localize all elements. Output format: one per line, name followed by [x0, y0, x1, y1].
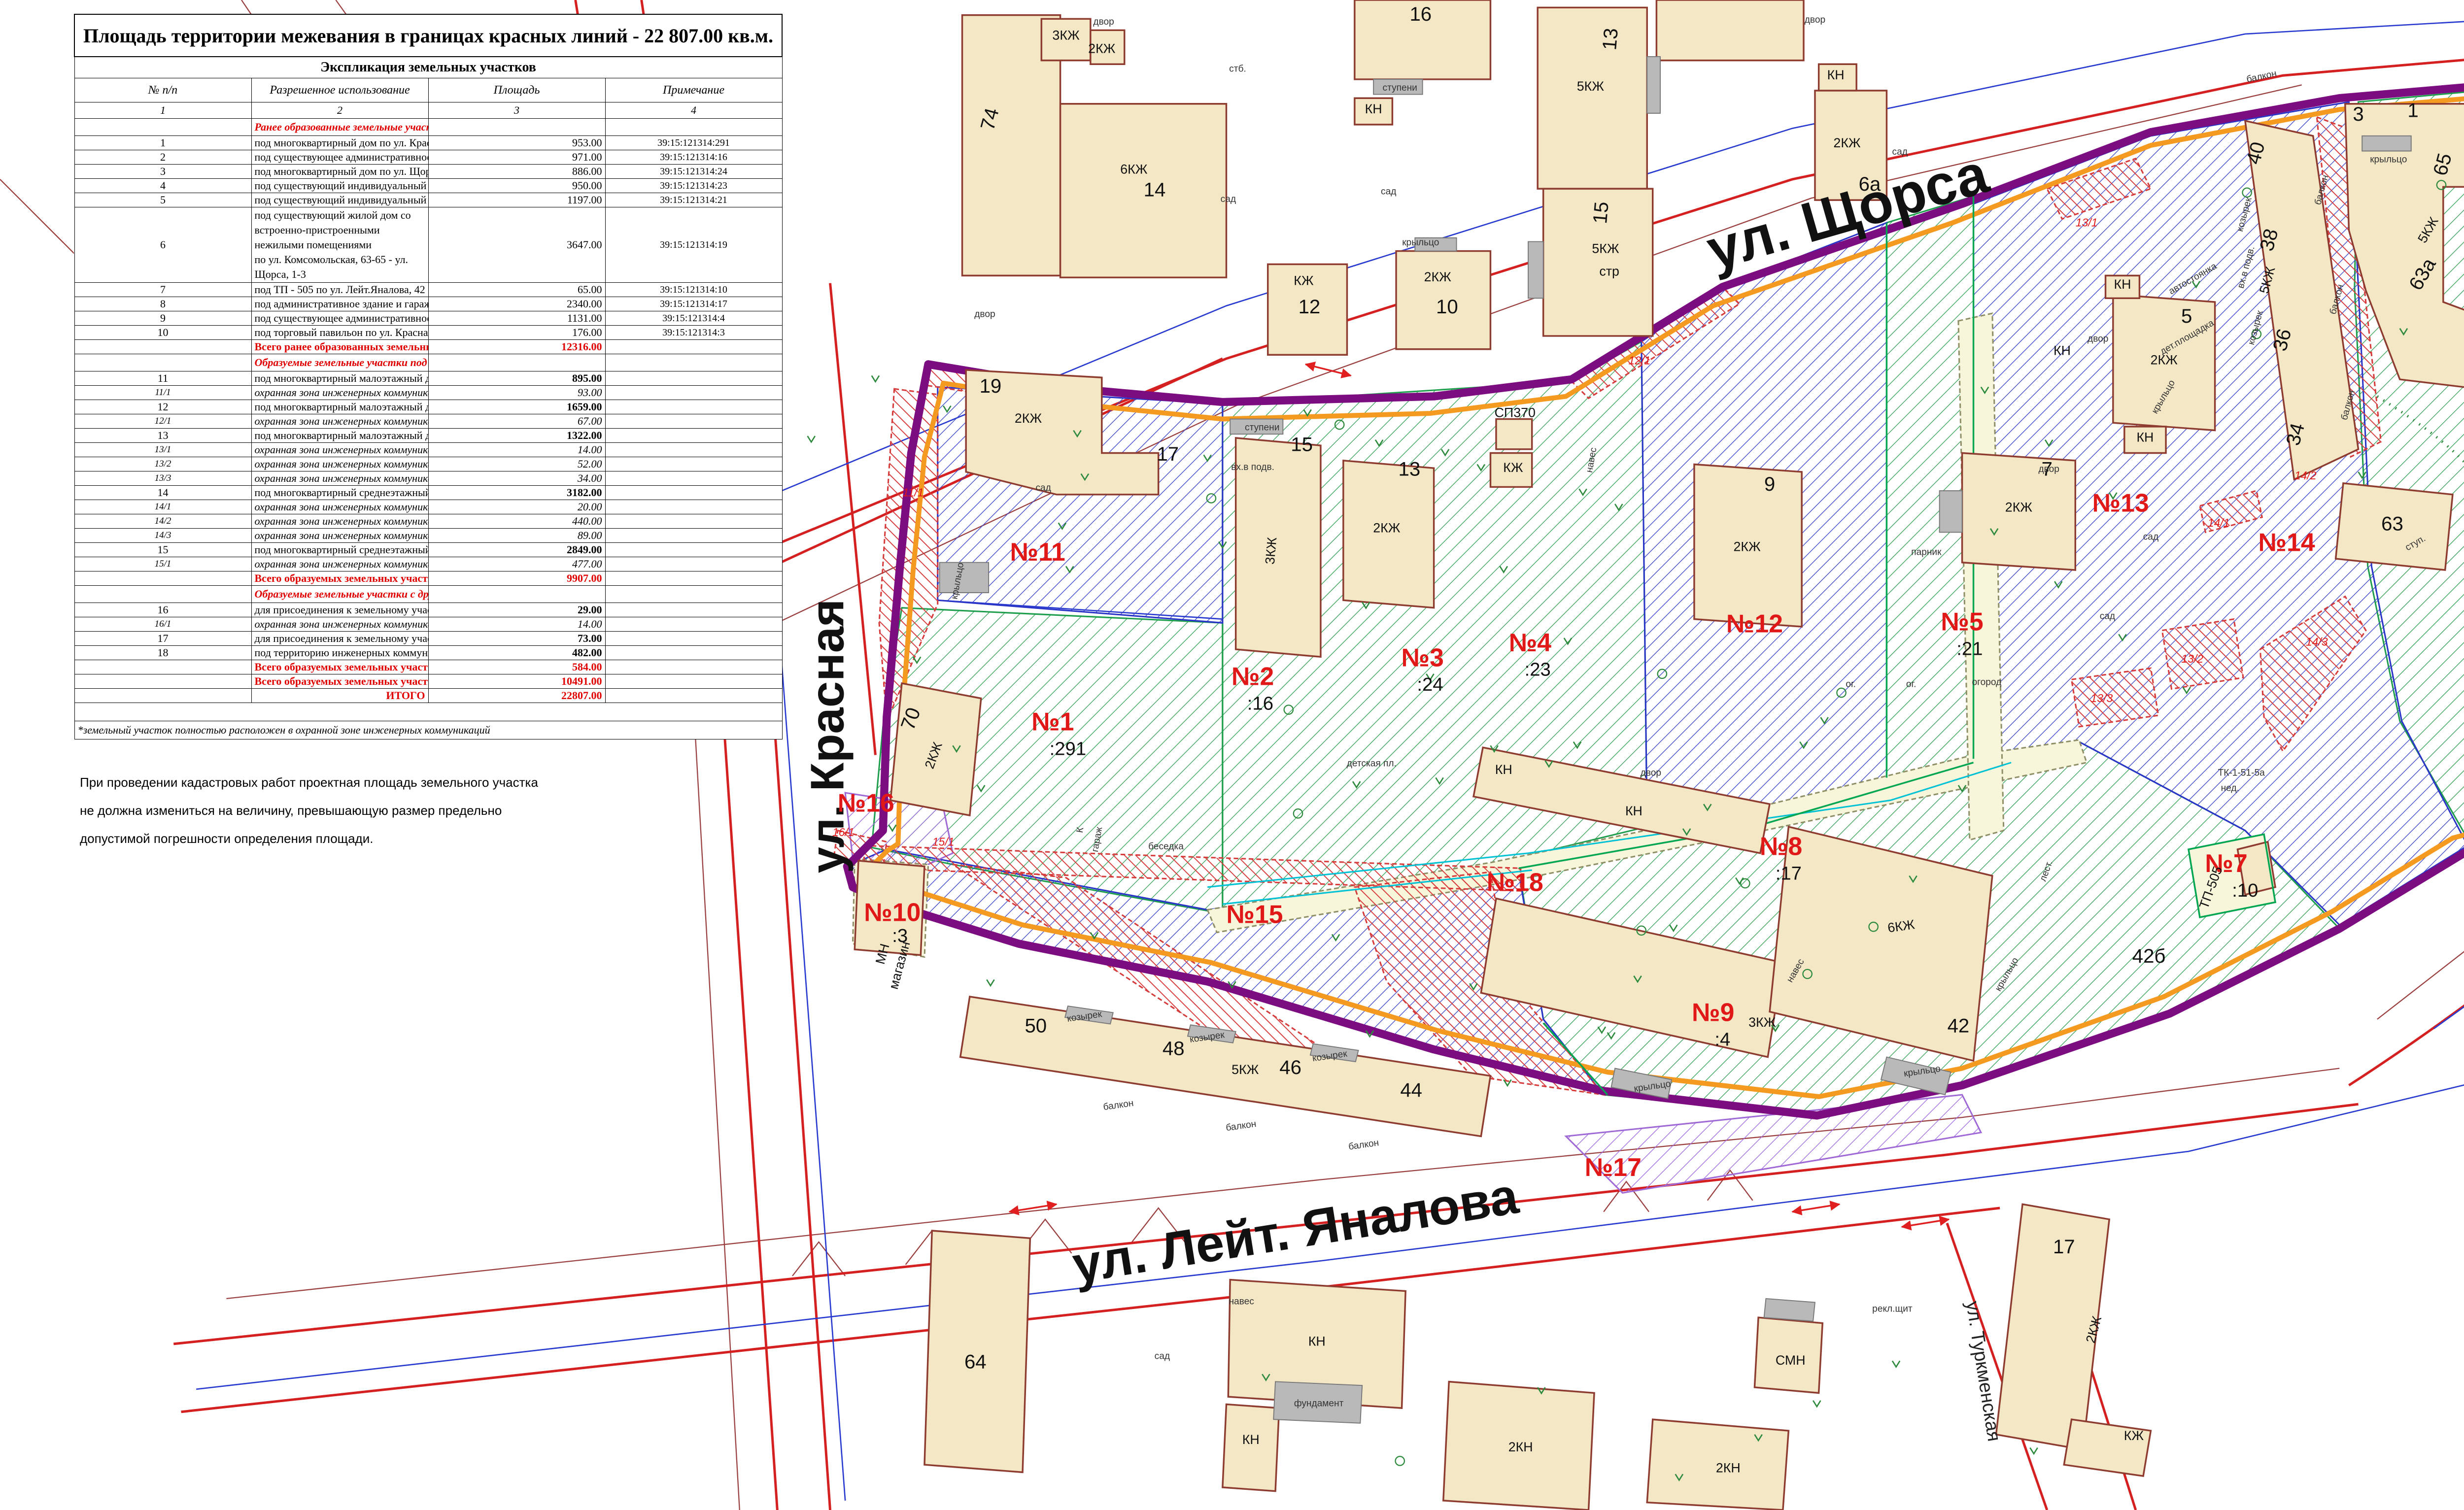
bn-label: 1: [2407, 100, 2418, 122]
ti-label: крыльцо: [1402, 237, 1439, 248]
table-row: 8под административное здание и гаражи дл…: [74, 297, 782, 311]
table-row: 13/3охранная зона инженерных коммуникаци…: [74, 471, 782, 486]
ti-label: нед.: [2221, 783, 2239, 793]
bn-label: 13: [1598, 27, 1622, 51]
bn-label: 42б: [2132, 945, 2166, 967]
sm-label: стр: [1599, 264, 1619, 278]
table-row: 14/2охранная зона инженерных коммуникаци…: [74, 514, 782, 529]
ti-label: двор: [1805, 15, 1825, 25]
cad-label: :21: [1956, 638, 1983, 659]
table-row: 16/1охранная зона инженерных коммуникаци…: [74, 617, 782, 632]
ti-label: сад: [2100, 611, 2115, 622]
table-row: 17для присоединения к земельному участку…: [74, 632, 782, 646]
explication-table: Площадь территории межевания в границах …: [74, 14, 783, 739]
sm-label: КН: [1308, 1334, 1326, 1349]
table-row: 7под ТП - 505 по ул. Лейт.Яналова, 4265.…: [74, 283, 782, 297]
page-title: Площадь территории межевания в границах …: [74, 14, 782, 57]
sm-label: КН: [2136, 430, 2154, 445]
table-subtitle: Экспликация земельных участков: [74, 57, 782, 78]
ti-label: сад: [2143, 532, 2158, 542]
ti-label: вх.в подв.: [1231, 462, 1274, 472]
pr-label: №8: [1760, 832, 1802, 861]
rs-label: 13/2: [2181, 652, 2203, 665]
table-row: *земельный участок полностью расположен …: [74, 721, 782, 739]
sm-label: КН: [1495, 762, 1512, 777]
bn-label: 63: [2381, 513, 2403, 535]
ti-label: парник: [1911, 547, 1942, 557]
ti-label: двор: [974, 309, 995, 320]
sm-label: 5КЖ: [1232, 1062, 1259, 1077]
grass-icon: [1892, 1361, 1900, 1367]
ti-label: рекл.щит: [1872, 1304, 1913, 1314]
rs-label: 11/1: [902, 486, 924, 499]
ti-label: навес: [1229, 1296, 1254, 1307]
ti-label: крыльцо: [2370, 154, 2407, 165]
cad-label: :291: [1050, 738, 1086, 759]
sm-label: 2КЖ: [1833, 135, 1860, 150]
bn-label: 17: [1157, 443, 1179, 465]
sm-label: СМН: [1776, 1353, 1806, 1368]
rs-label: 16/1: [832, 826, 855, 839]
bn-label: 17: [2053, 1236, 2075, 1258]
table-row: 12под многоквартирный малоэтажный дом по…: [74, 400, 782, 414]
ti-label: балкон: [1225, 1119, 1257, 1133]
pr-label: №18: [1487, 868, 1543, 896]
ti-label: сад: [1221, 194, 1236, 204]
grass-icon: [872, 375, 879, 381]
rs-label: 13/1: [2076, 216, 2098, 229]
col-header-note: Примечание: [605, 78, 782, 102]
ti-label: сад: [1155, 1351, 1170, 1361]
ti-label: огород: [1972, 677, 2001, 688]
table-subtitle-row: Экспликация земельных участков: [74, 57, 782, 78]
cadastral-plan-page: ул. Щорсаул. Комсомольскаяул. Краснаяул.…: [0, 0, 2464, 1510]
pr-label: №16: [838, 788, 894, 817]
sm-label: 6КЖ: [1120, 162, 1147, 176]
bn-label: 10: [1436, 296, 1458, 318]
bn-label: 9: [1764, 473, 1775, 495]
ti-label: двор: [1093, 17, 1114, 27]
sm-label: КН: [2053, 343, 2071, 358]
pr-label: №9: [1692, 998, 1734, 1027]
bn-label: 15: [1589, 201, 1613, 225]
sm-label: 2КЖ: [1373, 520, 1400, 535]
table-row: Всего образуемых земельных участков10491…: [74, 674, 782, 689]
note-below-table: При проведении кадастровых работ проектн…: [80, 769, 563, 853]
sm-label: 3КЖ: [1263, 537, 1280, 565]
table-row: 11под многоквартирный малоэтажный дом по…: [74, 371, 782, 386]
parcel-5: [1886, 196, 1973, 777]
sm-label: 2КЖ: [1424, 269, 1451, 284]
ti-label: ступени: [1245, 423, 1279, 433]
bn-label: 46: [1279, 1056, 1301, 1078]
table-row: 3под многоквартирный дом по ул. Щорса, 1…: [74, 165, 782, 179]
sm-label: КЖ: [1294, 273, 1314, 288]
sm-label: 3КЖ: [1748, 1015, 1776, 1030]
bn-label: 42: [1948, 1015, 1970, 1037]
sm-label: КЖ: [2124, 1428, 2144, 1443]
pr-label: №14: [2259, 528, 2315, 557]
cad-label: :4: [1714, 1029, 1730, 1050]
cad-label: :17: [1776, 863, 1802, 884]
sm-label: 2КЖ: [2005, 500, 2032, 514]
ti-label: сад: [1381, 187, 1396, 197]
sm-label: 2КЖ: [1734, 539, 1761, 554]
sm-label: 3КЖ: [1052, 28, 1079, 42]
bn-label: 3: [2353, 103, 2363, 125]
ti-label: балкон: [1348, 1138, 1379, 1152]
ti-label: стб.: [1229, 64, 1246, 74]
ti-label: ог.: [1846, 679, 1856, 690]
sm-label: 2КЖ: [1088, 41, 1115, 56]
ti-label: беседка: [1148, 841, 1184, 852]
col-header-area: Площадь: [428, 78, 605, 102]
grass-icon: [2030, 1448, 2037, 1454]
bn-label: 19: [980, 375, 1002, 397]
bn-label: 44: [1400, 1079, 1422, 1101]
sm-label: КН: [1365, 101, 1382, 116]
ti-label: ТК-1-51-5а: [2218, 768, 2265, 778]
table-row: 13/2охранная зона инженерных коммуникаци…: [74, 457, 782, 471]
bn-label: 64: [964, 1351, 987, 1373]
rs-label: 13/3: [2091, 692, 2113, 705]
table-row: 11/1охранная зона инженерных коммуникаци…: [74, 386, 782, 400]
note-line: допустимой погрешности определения площа…: [80, 825, 563, 853]
note-line: не должна измениться на величину, превыш…: [80, 797, 563, 825]
pr-label: №12: [1726, 609, 1783, 638]
pr-label: №11: [1010, 537, 1065, 566]
bn-label: 6а: [1859, 173, 1881, 195]
bn-label: 48: [1163, 1038, 1185, 1060]
ti-label: балкон: [1102, 1098, 1134, 1112]
table-row: 6под существующий жилой дом со встроенно…: [74, 207, 782, 283]
table-row: 14/1охранная зона инженерных коммуникаци…: [74, 500, 782, 514]
sm-label: 2КЖ: [1015, 411, 1042, 426]
pr-label: №4: [1509, 628, 1552, 657]
bn-label: 16: [1409, 3, 1432, 25]
rs-label: 14/3: [2306, 635, 2328, 648]
table-row: 9под существующее административное здани…: [74, 311, 782, 326]
ti-label: сад: [1035, 483, 1051, 493]
sm-label: СП370: [1495, 405, 1536, 420]
bn-label: 15: [1291, 434, 1313, 456]
pr-label: №15: [1226, 900, 1283, 928]
table-row: Образуемые земельные участки с другим ра…: [74, 586, 782, 603]
sm-label: 5КЖ: [1577, 79, 1604, 94]
pr-label: №10: [864, 898, 921, 927]
sm-label: КН: [1242, 1432, 1260, 1447]
column-number-row: 1 2 3 4: [74, 102, 782, 119]
cad-label: :24: [1417, 674, 1443, 695]
table-row: 13/1охранная зона инженерных коммуникаци…: [74, 443, 782, 457]
cad-label: :23: [1525, 659, 1551, 680]
bn-label: 50: [1025, 1015, 1047, 1037]
ti-label: фундамент: [1294, 1398, 1344, 1409]
ti-label: сад: [1892, 147, 1908, 157]
sm-label: КН: [1827, 67, 1845, 82]
table-row: Образуемые земельные участки под многокв…: [74, 354, 782, 371]
table-row: 4под существующий индивидуальный жилой д…: [74, 179, 782, 193]
bn-label: 13: [1398, 458, 1420, 480]
table-row: 18под территорию инженерных коммуникаций…: [74, 646, 782, 660]
ti-label: двор: [2088, 334, 2108, 344]
rs-label: 14/1: [2208, 516, 2230, 529]
grass-icon: [808, 436, 815, 442]
table-row: [74, 703, 782, 721]
table-row: 1под многоквартирный дом по ул. Красная,…: [74, 136, 782, 150]
bn-label: 14: [1144, 178, 1166, 201]
grass-icon: [987, 979, 994, 985]
table-row: ИТОГО22807.00: [74, 689, 782, 703]
rs-label: 12/1: [1629, 354, 1651, 367]
rs-label: 14/2: [2294, 469, 2317, 482]
st3-label: ул. Лейт. Яналова: [1068, 1167, 1522, 1294]
col-header-num: № п/п: [74, 78, 251, 102]
table-row: 15под многоквартирный среднеэтажный дом …: [74, 543, 782, 557]
pr-label: №1: [1031, 707, 1074, 736]
bn-label: 12: [1299, 296, 1321, 318]
table-row: 13под многоквартирный малоэтажный дом по…: [74, 429, 782, 443]
table-row: Всего образуемых земельных участков под …: [74, 571, 782, 586]
sm-label: 2КН: [1508, 1440, 1533, 1454]
ti-label: ступени: [1383, 83, 1417, 93]
ti-label: детская пл.: [1347, 758, 1397, 769]
pr-label: №17: [1585, 1153, 1642, 1181]
table-row: 10под торговый павильон по ул. Красная -…: [74, 326, 782, 340]
table-row: 14/3охранная зона инженерных коммуникаци…: [74, 529, 782, 543]
table-row: 5под существующий индивидуальный жилой д…: [74, 193, 782, 207]
sm-label: КН: [1625, 804, 1643, 818]
table-row: 2под существующее административное здани…: [74, 150, 782, 165]
ti-label: ог.: [1906, 679, 1916, 690]
table-row: Ранее образованные земельные участки:: [74, 119, 782, 136]
pr-label: №5: [1941, 607, 1983, 636]
explication-table-wrap: Площадь территории межевания в границах …: [74, 14, 783, 739]
table-row: Всего образуемых земельных участков с др…: [74, 660, 782, 674]
table-row: 15/1охранная зона инженерных коммуникаци…: [74, 557, 782, 571]
bn-label: 5: [2181, 305, 2192, 327]
table-row: 16для присоединения к земельному участку…: [74, 603, 782, 617]
pr-label: №3: [1401, 643, 1443, 671]
sm-label: КЖ: [1503, 460, 1523, 475]
pr-label: №2: [1232, 662, 1274, 691]
cad-label: :10: [2232, 880, 2258, 901]
ti-label: двор: [2039, 464, 2059, 474]
tree-icon: [1396, 1456, 1404, 1465]
table-header-row: № п/п Разрешенное использование Площадь …: [74, 78, 782, 102]
table-row: 12/1охранная зона инженерных коммуникаци…: [74, 414, 782, 429]
grass-icon: [1813, 1401, 1820, 1407]
rs-label: 15/1: [932, 835, 955, 848]
sm-label: 2КН: [1716, 1460, 1741, 1475]
cad-label: :16: [1247, 693, 1273, 714]
table-row: 14под многоквартирный среднеэтажный дом …: [74, 486, 782, 500]
table-row: Всего ранее образованных земельных участ…: [74, 340, 782, 354]
sm-label: 5КЖ: [1592, 241, 1619, 256]
table-title-row: Площадь территории межевания в границах …: [74, 14, 782, 57]
ti-label: балкон: [2246, 68, 2278, 85]
pr-label: №13: [2092, 488, 2149, 517]
note-line: При проведении кадастровых работ проектн…: [80, 769, 563, 797]
col-header-use: Разрешенное использование: [251, 78, 428, 102]
sm-label: КН: [2114, 277, 2131, 292]
ti-label: двор: [1641, 768, 1661, 778]
